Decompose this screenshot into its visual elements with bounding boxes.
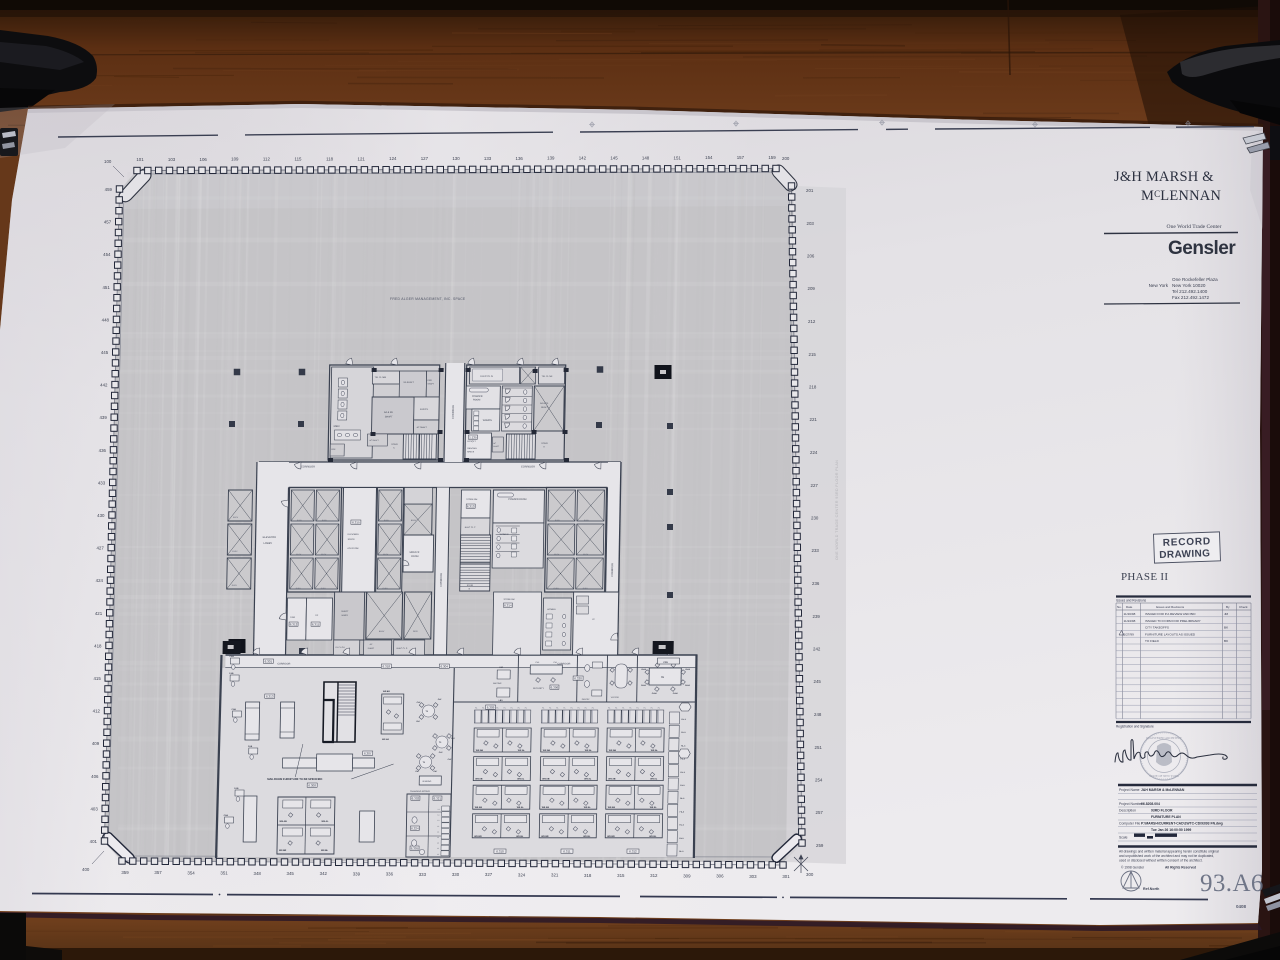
svg-text:ELEV: ELEV: [583, 588, 589, 590]
svg-text:STORE RM: STORE RM: [466, 499, 477, 501]
svg-text:6.306: 6.306: [551, 685, 559, 689]
svg-text:All drawings and written mater: All drawings and written material appear…: [1119, 850, 1219, 854]
svg-text:206: 206: [807, 254, 815, 259]
svg-text:124: 124: [389, 156, 397, 161]
svg-text:TO FIELD: TO FIELD: [1145, 639, 1160, 643]
svg-text:EL CL GH: EL CL GH: [336, 647, 346, 649]
svg-text:303: 303: [749, 874, 757, 879]
svg-text:ELEV: ELEV: [411, 520, 417, 522]
svg-text:CORRIDOR: CORRIDOR: [440, 573, 443, 587]
svg-text:POWDER ROOM: POWDER ROOM: [508, 499, 526, 501]
svg-text:FIL.5: FIL.5: [679, 825, 683, 827]
svg-text:11/24/98: 11/24/98: [1124, 619, 1136, 623]
svg-text:154: 154: [705, 155, 713, 160]
svg-text:L1: L1: [437, 843, 439, 845]
svg-text:6.312: 6.312: [290, 622, 298, 626]
svg-text:457: 457: [104, 220, 112, 225]
svg-text:6.313: 6.313: [266, 694, 274, 698]
svg-text:400: 400: [82, 867, 90, 872]
svg-text:151: 151: [674, 155, 682, 160]
svg-text:Registration and Signature: Registration and Signature: [1116, 725, 1154, 729]
svg-text:Description: Description: [1119, 809, 1136, 813]
svg-text:100: 100: [104, 159, 112, 164]
svg-text:WOMEN: WOMEN: [547, 609, 556, 611]
svg-text:242: 242: [813, 647, 821, 652]
svg-text:WS AB: WS AB: [608, 806, 616, 809]
svg-text:FIL: FIL: [592, 708, 594, 710]
svg-text:351: 351: [220, 871, 228, 876]
svg-text:CH7: CH7: [438, 699, 442, 701]
svg-text:6.305: 6.305: [411, 846, 419, 850]
svg-text:SHAFT: SHAFT: [427, 383, 434, 386]
svg-text:SHAFT: SHAFT: [368, 647, 375, 650]
svg-text:209: 209: [808, 286, 816, 291]
svg-text:Issues and Revisions: Issues and Revisions: [1156, 605, 1185, 609]
svg-text:CH10: CH10: [641, 669, 646, 671]
svg-text:New York 10020: New York 10020: [1172, 283, 1206, 288]
svg-text:FIL: FIL: [578, 708, 580, 710]
svg-text:ELEV: ELEV: [296, 554, 302, 556]
svg-text:FIL.5: FIL.5: [680, 798, 684, 800]
svg-text:201: 201: [806, 188, 814, 193]
svg-text:318: 318: [584, 873, 592, 878]
svg-text:ELEV: ELEV: [232, 585, 238, 587]
svg-text:212: 212: [808, 319, 816, 324]
svg-text:WS BL: WS BL: [321, 850, 329, 852]
svg-text:424: 424: [96, 578, 104, 583]
svg-text:306: 306: [716, 874, 724, 879]
svg-text:ELEV: ELEV: [554, 588, 560, 590]
svg-text:218: 218: [809, 385, 817, 390]
svg-text:Tue Jan 26 16:00:50 1999: Tue Jan 26 16:00:50 1999: [1151, 828, 1191, 832]
svg-text:VISITOR: VISITOR: [611, 697, 620, 699]
svg-text:348: 348: [254, 871, 262, 876]
svg-text:336: 336: [386, 872, 394, 877]
svg-text:224: 224: [810, 450, 818, 455]
svg-text:WS AL: WS AL: [321, 820, 329, 823]
svg-text:FIL: FIL: [629, 708, 631, 710]
svg-text:142: 142: [579, 156, 587, 161]
svg-text:RECORD: RECORD: [1163, 536, 1211, 549]
svg-text:418: 418: [94, 643, 102, 648]
svg-text:FURNITURE LAYOUTS AS ISSUED: FURNITURE LAYOUTS AS ISSUED: [1145, 632, 1196, 636]
svg-text:FIL: FIL: [622, 708, 624, 710]
svg-text:New York: New York: [1149, 283, 1169, 288]
svg-text:FIL: FIL: [658, 708, 660, 710]
svg-text:439: 439: [99, 415, 107, 420]
svg-text:6.309: 6.309: [487, 705, 495, 709]
svg-text:CH7: CH7: [416, 721, 420, 723]
svg-text:DDR: DDR: [413, 631, 418, 633]
svg-text:236: 236: [812, 581, 820, 586]
svg-text:FIL: FIL: [608, 708, 610, 710]
svg-text:© 1998 Gensler: © 1998 Gensler: [1121, 866, 1145, 870]
svg-text:93.A6: 93.A6: [1200, 870, 1264, 897]
svg-text:JC: JC: [592, 619, 595, 621]
svg-text:Project Name: Project Name: [1119, 788, 1140, 792]
svg-text:CH5: CH5: [535, 662, 539, 664]
svg-text:ONE WORLD TRADE CENTER 93RD F: ONE WORLD TRADE CENTER 93RD FLOOR PLAN: [835, 460, 839, 560]
svg-text:136: 136: [516, 156, 524, 161]
svg-text:451: 451: [102, 285, 110, 290]
svg-text:6.302: 6.302: [412, 796, 420, 800]
svg-text:L1: L1: [438, 809, 440, 811]
svg-text:FIL: FIL: [556, 708, 558, 710]
svg-text:Tel 212.492.1400: Tel 212.492.1400: [1172, 289, 1208, 294]
svg-text:101: 101: [136, 157, 144, 162]
svg-text:139: 139: [547, 156, 555, 161]
svg-text:Date: Date: [1126, 605, 1133, 609]
svg-text:PANTRY: PANTRY: [582, 698, 591, 701]
svg-text:CAB: CAB: [234, 787, 239, 790]
svg-text:6.320: 6.320: [574, 676, 582, 680]
svg-text:Project Number: Project Number: [1119, 802, 1143, 806]
svg-text:127: 127: [421, 156, 429, 161]
svg-text:157: 157: [737, 155, 745, 160]
svg-text:J&H MARSH &: J&H MARSH &: [1114, 169, 1214, 185]
svg-text:WS AL: WS AL: [517, 778, 525, 781]
svg-text:ELEV: ELEV: [233, 517, 239, 519]
svg-text:Scale: Scale: [1119, 836, 1128, 840]
svg-text:CORRIDOR: CORRIDOR: [611, 563, 614, 577]
svg-text:WS AB: WS AB: [279, 820, 287, 823]
svg-text:WS AL: WS AL: [518, 749, 526, 752]
svg-text:6.312: 6.312: [629, 849, 637, 853]
svg-text:CAB: CAB: [229, 672, 234, 675]
svg-text:Check: Check: [1239, 605, 1248, 609]
svg-text:WS AL: WS AL: [650, 806, 658, 809]
svg-text:STAIR: STAIR: [467, 584, 474, 587]
svg-text:421: 421: [95, 611, 103, 616]
svg-text:6.315: 6.315: [352, 520, 360, 524]
svg-text:WS AL: WS AL: [517, 806, 525, 809]
svg-text:FIL: FIL: [644, 708, 646, 710]
svg-text:ELEV: ELEV: [322, 520, 328, 522]
svg-text:ELEC CL N: ELEC CL N: [480, 375, 493, 378]
svg-text:11/16/98: 11/16/98: [1124, 612, 1136, 616]
svg-text:6.311: 6.311: [563, 849, 571, 853]
svg-text:342: 342: [320, 871, 328, 876]
svg-text:AC SHAFT: AC SHAFT: [417, 426, 428, 429]
svg-text:6.310: 6.310: [496, 849, 504, 853]
svg-text:FIL: FIL: [496, 708, 498, 710]
svg-text:FIL.5: FIL.5: [679, 838, 683, 840]
svg-text:300: 300: [806, 872, 814, 877]
svg-text:CAB: CAB: [232, 708, 237, 711]
svg-text:WS AB: WS AB: [475, 806, 483, 809]
svg-text:FIL: FIL: [511, 708, 513, 710]
svg-text:406: 406: [91, 774, 99, 779]
svg-text:ELEV: ELEV: [232, 551, 238, 553]
svg-text:459: 459: [105, 187, 113, 192]
svg-text:442: 442: [100, 383, 108, 388]
svg-text:CORRIDOR: CORRIDOR: [301, 465, 315, 469]
svg-text:245: 245: [814, 679, 822, 684]
svg-text:FIL.5: FIL.5: [681, 759, 685, 761]
svg-text:6.311: 6.311: [312, 622, 320, 626]
svg-text:ODR: ODR: [290, 617, 295, 619]
svg-text:FIL.5: FIL.5: [680, 785, 684, 787]
svg-text:Issues and Revisions: Issues and Revisions: [1116, 599, 1147, 603]
svg-text:ELEV: ELEV: [384, 520, 390, 522]
svg-text:L1: L1: [438, 815, 440, 817]
svg-text:Gensler: Gensler: [1168, 238, 1236, 259]
svg-text:Computer File: Computer File: [1119, 822, 1140, 826]
svg-text:93RD FLOOR: 93RD FLOOR: [1151, 809, 1173, 813]
svg-text:ELEV: ELEV: [383, 588, 389, 590]
svg-text:ELEV: ELEV: [383, 554, 389, 556]
svg-text:STAIR: STAIR: [541, 442, 548, 445]
svg-text:FIL: FIL: [615, 708, 617, 710]
svg-text:PIPE: PIPE: [427, 380, 432, 382]
svg-text:454: 454: [103, 252, 111, 257]
svg-text:233: 233: [812, 548, 820, 553]
svg-text:CH10: CH10: [685, 669, 690, 671]
svg-text:FIL: FIL: [525, 708, 527, 710]
svg-text:221: 221: [810, 417, 818, 422]
svg-text:SA & PA: SA & PA: [540, 402, 549, 405]
svg-text:WS AB: WS AB: [543, 749, 551, 752]
svg-text:412: 412: [93, 709, 101, 714]
svg-text:148: 148: [642, 155, 650, 160]
svg-text:TEL CL NE: TEL CL NE: [541, 376, 552, 378]
svg-text:239: 239: [813, 614, 821, 619]
svg-text:333: 333: [419, 872, 427, 877]
svg-text:445: 445: [101, 350, 109, 355]
svg-text:WS AL: WS AL: [585, 749, 593, 752]
svg-text:251: 251: [815, 745, 823, 750]
svg-text:1.135: 1.135: [469, 435, 477, 439]
svg-text:FIL.5: FIL.5: [681, 732, 685, 734]
svg-text:436: 436: [99, 448, 107, 453]
svg-text:STAIR: STAIR: [391, 443, 398, 446]
svg-text:WS BR: WS BR: [383, 691, 391, 693]
svg-text:FIL: FIL: [563, 708, 565, 710]
svg-text:Ref.North: Ref.North: [1143, 887, 1159, 891]
svg-text:118: 118: [326, 156, 334, 161]
svg-text:145: 145: [610, 156, 618, 161]
svg-text:215: 215: [809, 352, 817, 357]
svg-text:ROOM: ROOM: [473, 400, 480, 402]
svg-text:FIL.5: FIL.5: [681, 719, 685, 721]
svg-text:L1: L1: [437, 848, 439, 850]
svg-text:CAB: CAB: [224, 814, 229, 817]
svg-text:254: 254: [815, 778, 823, 783]
svg-text:WS BL: WS BL: [516, 836, 524, 838]
svg-text:448: 448: [102, 317, 110, 322]
svg-text:SA SHAFT: SA SHAFT: [403, 381, 414, 384]
svg-text:109: 109: [231, 157, 239, 162]
svg-text:330: 330: [452, 872, 460, 877]
svg-text:FIL.5: FIL.5: [681, 745, 685, 747]
svg-text:6.314: 6.314: [504, 603, 512, 607]
svg-text:6.324: 6.324: [411, 826, 419, 830]
svg-text:CH7: CH7: [439, 752, 443, 754]
svg-text:WS AL: WS AL: [584, 778, 592, 781]
svg-text:No.: No.: [1117, 605, 1122, 609]
svg-text:FIL: FIL: [542, 708, 544, 710]
svg-text:FIL: FIL: [503, 708, 505, 710]
svg-text:ELEV: ELEV: [584, 520, 590, 522]
svg-text:SHAFT: SHAFT: [385, 416, 393, 419]
svg-text:430: 430: [97, 513, 105, 518]
svg-text:Fax 212.492.1472: Fax 212.492.1472: [1172, 295, 1209, 300]
svg-text:6.313: 6.313: [467, 504, 475, 508]
svg-text:GEN/SAN: GEN/SAN: [467, 447, 477, 450]
svg-text:JAN CL: JAN CL: [420, 408, 429, 411]
svg-text:FIL.5: FIL.5: [680, 772, 684, 774]
svg-text:WS AL: WS AL: [650, 778, 658, 781]
svg-text:433: 433: [98, 480, 106, 485]
svg-text:CH10: CH10: [652, 693, 657, 695]
svg-text:STORE RM: STORE RM: [503, 599, 514, 601]
svg-text:130: 130: [452, 156, 460, 161]
svg-text:WS AB: WS AB: [542, 806, 550, 809]
svg-text:ELEV: ELEV: [379, 631, 385, 633]
svg-text:427: 427: [96, 546, 104, 551]
svg-text:CH7: CH7: [448, 759, 452, 761]
svg-text:CORRIDOR: CORRIDOR: [521, 465, 535, 469]
svg-text:MEN: MEN: [334, 424, 340, 428]
svg-text:By: By: [1226, 605, 1230, 609]
svg-text:One World Trade Center: One World Trade Center: [1167, 224, 1222, 230]
svg-text:All Rights Reserved: All Rights Reserved: [1165, 866, 1196, 870]
svg-text:SERVICE: SERVICE: [409, 552, 420, 554]
svg-text:WAITING: WAITING: [493, 682, 502, 685]
svg-text:ELEV: ELEV: [321, 588, 327, 590]
svg-text:312: 312: [650, 873, 658, 878]
svg-text:CORRIDOR: CORRIDOR: [451, 405, 455, 419]
svg-text:SPACE: SPACE: [467, 451, 475, 454]
svg-text:ELEV: ELEV: [321, 554, 327, 556]
svg-text:CAB: CAB: [229, 655, 234, 658]
svg-text:06.8208.004: 06.8208.004: [1141, 802, 1160, 806]
svg-text:403: 403: [90, 806, 98, 811]
svg-text:L1: L1: [437, 831, 439, 833]
svg-text:POWDER: POWDER: [472, 396, 483, 398]
svg-text:409: 409: [92, 741, 100, 746]
svg-text:339: 339: [353, 871, 361, 876]
svg-text:357: 357: [154, 870, 162, 875]
svg-text:L1: L1: [437, 826, 439, 828]
svg-text:L1: L1: [437, 837, 439, 839]
svg-text:and unpublished work of the ar: and unpublished work of the architect an…: [1119, 854, 1214, 858]
svg-text:359: 359: [121, 870, 129, 875]
svg-text:TEL CL MM: TEL CL MM: [374, 377, 386, 379]
svg-text:ELEV: ELEV: [297, 520, 303, 522]
svg-text:ELEV: ELEV: [296, 588, 302, 590]
svg-text:FIL.5: FIL.5: [680, 811, 684, 813]
svg-text:230: 230: [811, 516, 819, 521]
svg-text:103: 103: [168, 157, 176, 162]
svg-text:301: 301: [782, 874, 790, 879]
svg-text:WS AL: WS AL: [584, 806, 592, 809]
svg-text:LOBBY: LOBBY: [263, 541, 272, 545]
svg-text:WS AB: WS AB: [542, 778, 550, 781]
svg-text:159: 159: [768, 155, 776, 160]
svg-text:CH10: CH10: [641, 685, 646, 687]
svg-text:JM: JM: [1224, 612, 1229, 616]
svg-text:248: 248: [814, 712, 822, 717]
svg-text:VENDING: VENDING: [422, 781, 432, 783]
svg-text:345: 345: [287, 871, 295, 876]
svg-text:6.301: 6.301: [265, 659, 273, 663]
svg-text:CH7: CH7: [451, 738, 455, 740]
svg-text:315: 315: [617, 873, 625, 878]
svg-text:ELEVATOR: ELEVATOR: [263, 535, 277, 539]
svg-text:STATE OF NEW YORK: STATE OF NEW YORK: [1149, 774, 1180, 778]
svg-text:MAILROOM FURNITURE TO BE SPECI: MAILROOM FURNITURE TO BE SPECIFIED: [267, 777, 322, 781]
svg-text:6.304: 6.304: [441, 664, 449, 668]
svg-text:401: 401: [90, 839, 98, 844]
svg-text:WS AR: WS AR: [382, 738, 389, 741]
svg-text:CAB: CAB: [248, 745, 253, 748]
svg-text:L1: L1: [437, 854, 439, 856]
svg-text:DRAWING: DRAWING: [1159, 548, 1210, 561]
svg-text:1/27/99: 1/27/99: [1124, 632, 1135, 636]
svg-text:CH10: CH10: [673, 693, 678, 695]
svg-text:112: 112: [263, 157, 271, 162]
svg-text:106: 106: [200, 157, 208, 162]
svg-text:WS BR: WS BR: [541, 836, 549, 838]
svg-text:200: 200: [782, 156, 790, 161]
svg-text:CITY TAKEOFFS: CITY TAKEOFFS: [1145, 626, 1169, 630]
svg-text:327: 327: [485, 872, 493, 877]
svg-text:ELEC CL S: ELEC CL S: [397, 648, 408, 650]
svg-text:0408: 0408: [1236, 904, 1247, 909]
svg-text:WS BR: WS BR: [279, 850, 287, 852]
svg-text:L1: L1: [438, 820, 440, 822]
svg-text:WS BR: WS BR: [607, 836, 615, 838]
svg-text:133: 133: [484, 156, 492, 161]
svg-text:SHAFT: SHAFT: [493, 445, 500, 448]
svg-text:CH7: CH7: [433, 771, 437, 773]
svg-text:6.318: 6.318: [383, 664, 391, 668]
svg-text:ISSUED FOR P.A REVIEW AND BID: ISSUED FOR P.A REVIEW AND BID: [1145, 612, 1196, 616]
svg-text:ELEV: ELEV: [583, 554, 589, 556]
svg-text:FIL: FIL: [651, 708, 653, 710]
svg-text:WS AL: WS AL: [651, 749, 659, 752]
svg-text:FIL: FIL: [475, 708, 477, 710]
svg-text:CH7: CH7: [415, 771, 419, 773]
svg-text:SHAFT: SHAFT: [541, 406, 549, 409]
svg-text:FIL: FIL: [518, 708, 520, 710]
svg-text:FRED ALGER MANAGEMENT, INC. SP: FRED ALGER MANAGEMENT, INC. SPACE: [390, 297, 466, 301]
svg-text:257: 257: [816, 810, 824, 815]
svg-text:CHANGING ROOMS: CHANGING ROOMS: [410, 790, 430, 793]
svg-text:FIL: FIL: [549, 708, 551, 710]
svg-text:ELEC CL C: ELEC CL C: [465, 527, 476, 529]
svg-text:FURNITURE PLAN: FURNITURE PLAN: [1151, 815, 1181, 819]
svg-text:321: 321: [551, 873, 559, 878]
svg-text:WS AB: WS AB: [609, 749, 617, 752]
svg-text:FIL: FIL: [585, 708, 587, 710]
svg-text:CORRIDOR: CORRIDOR: [277, 663, 290, 666]
svg-text:203: 203: [807, 221, 815, 226]
svg-text:REGISTERED ARCHITECT: REGISTERED ARCHITECT: [1146, 736, 1182, 740]
svg-text:259: 259: [816, 843, 824, 848]
svg-text:ELEV: ELEV: [554, 554, 560, 556]
svg-text:53 SQFT: 53 SQFT: [467, 441, 476, 443]
svg-text:ELEV/MAIL: ELEV/MAIL: [348, 533, 360, 536]
svg-text:227: 227: [811, 483, 819, 488]
svg-text:SA & PA: SA & PA: [384, 411, 393, 414]
svg-text:6.307: 6.307: [364, 751, 372, 755]
svg-text:6.308: 6.308: [308, 783, 316, 787]
svg-text:ISSUED TO FORM FOR PRELIMINARY: ISSUED TO FORM FOR PRELIMINARY: [1145, 619, 1201, 623]
svg-text:CH7: CH7: [417, 702, 421, 704]
svg-text:WS BL: WS BL: [649, 836, 657, 838]
